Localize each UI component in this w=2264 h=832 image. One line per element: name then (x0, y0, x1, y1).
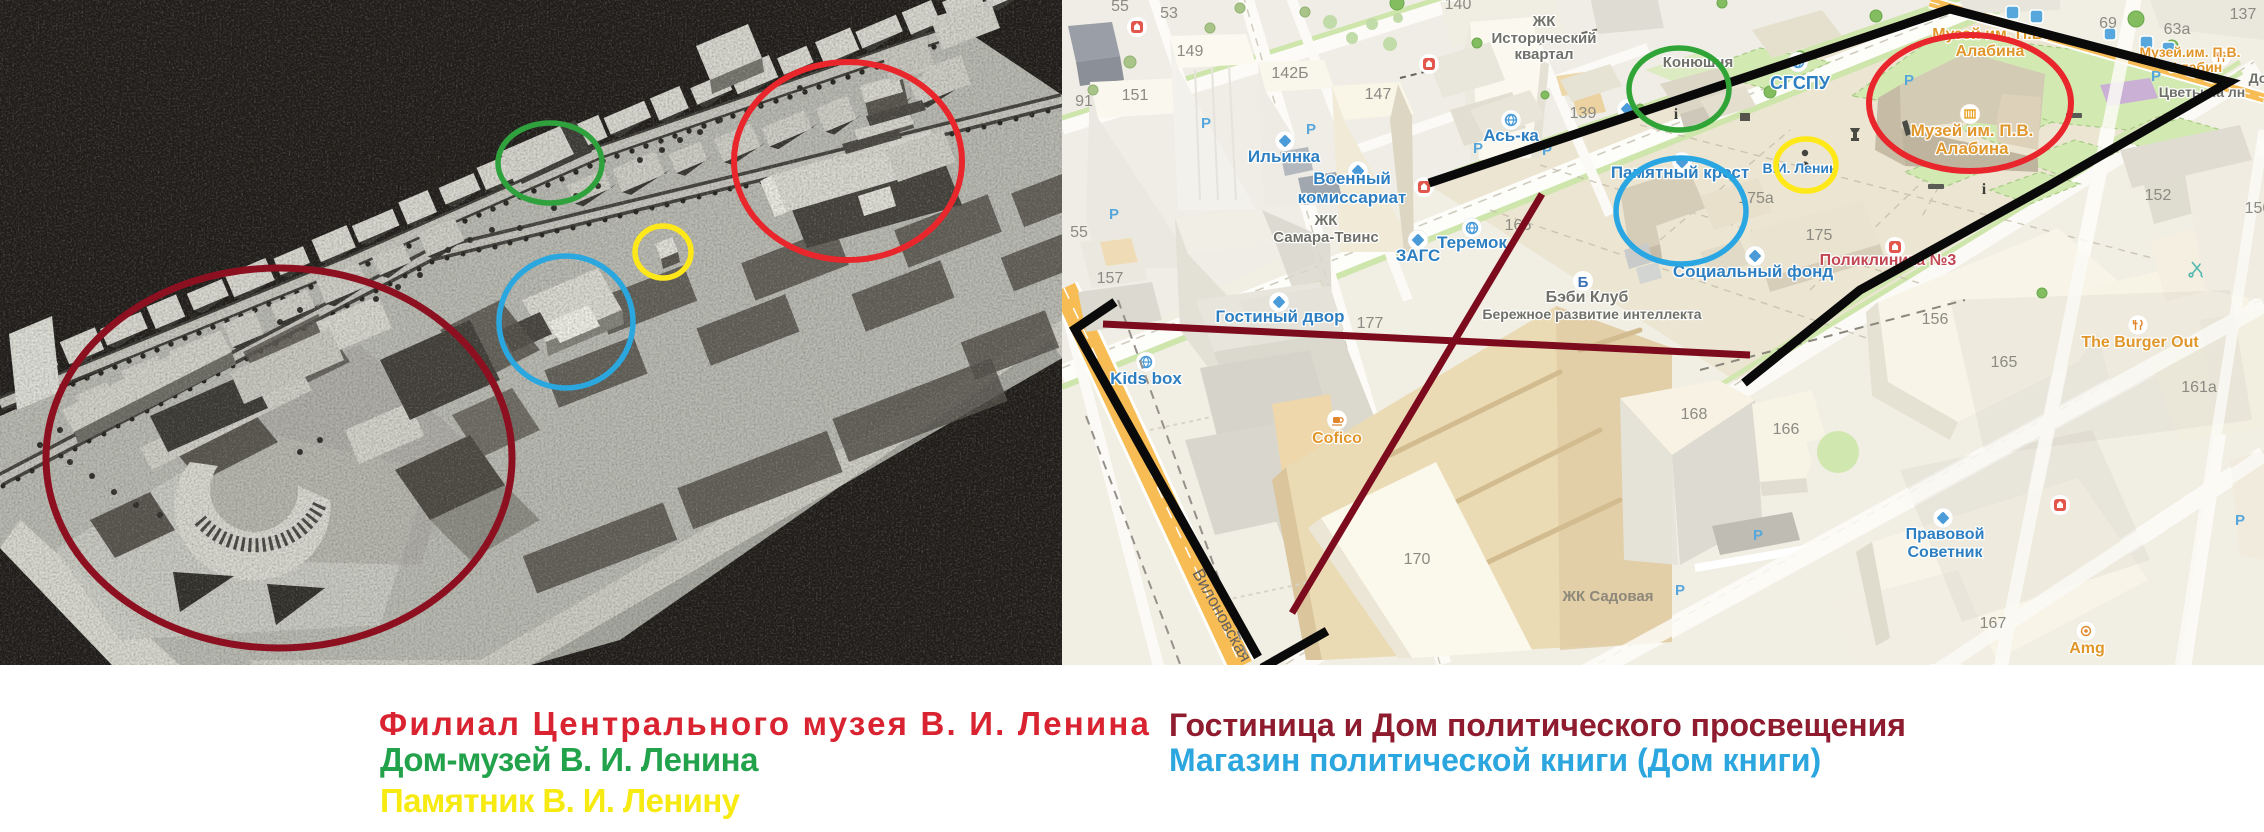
svg-text:157: 157 (1097, 270, 1124, 287)
svg-text:170: 170 (1404, 551, 1431, 568)
svg-text:P: P (1201, 115, 1211, 132)
svg-text:165: 165 (1991, 354, 2018, 371)
svg-text:142Б: 142Б (1271, 65, 1308, 82)
svg-text:Исторический: Исторический (1492, 30, 1597, 47)
svg-text:69: 69 (2099, 15, 2117, 32)
svg-text:Советник: Советник (1908, 544, 1984, 561)
svg-text:161а: 161а (2181, 379, 2217, 396)
svg-text:177: 177 (1357, 315, 1384, 332)
svg-text:P: P (1306, 121, 1316, 138)
svg-text:Военный: Военный (1313, 169, 1391, 188)
svg-text:ЖК: ЖК (1314, 212, 1339, 229)
svg-text:166: 166 (1773, 421, 1800, 438)
svg-text:P: P (2235, 512, 2245, 529)
svg-text:Теремок: Теремок (1437, 233, 1507, 252)
svg-text:Самара-Твинс: Самара-Твинс (1273, 229, 1379, 246)
svg-text:The Burger Out: The Burger Out (2081, 334, 2199, 351)
svg-text:150: 150 (2245, 200, 2264, 217)
svg-text:P: P (2151, 68, 2161, 85)
svg-text:Алабина: Алабина (1935, 139, 2009, 158)
svg-text:комиссариат: комиссариат (1298, 188, 1407, 207)
svg-text:55: 55 (1070, 224, 1088, 241)
svg-text:ЖК Садовая: ЖК Садовая (1561, 588, 1653, 605)
svg-text:P: P (1675, 582, 1685, 599)
svg-text:152: 152 (2145, 187, 2172, 204)
svg-text:До: До (2249, 70, 2264, 86)
svg-text:Amg: Amg (2069, 640, 2105, 657)
svg-text:Бэби Клуб: Бэби Клуб (1546, 289, 1629, 306)
svg-text:53: 53 (1160, 5, 1178, 22)
svg-text:63а: 63а (2164, 21, 2191, 38)
svg-text:139: 139 (1570, 105, 1597, 122)
svg-text:151: 151 (1122, 87, 1149, 104)
svg-text:P: P (1904, 72, 1914, 89)
svg-text:175: 175 (1806, 227, 1833, 244)
svg-text:147: 147 (1365, 86, 1392, 103)
svg-text:СГСПУ: СГСПУ (1770, 73, 1831, 93)
svg-text:P: P (1753, 527, 1763, 544)
svg-text:167: 167 (1980, 615, 2007, 632)
svg-text:91: 91 (1075, 93, 1093, 110)
svg-text:i: i (1982, 181, 1987, 198)
svg-text:Музей им. П.В.: Музей им. П.В. (1911, 121, 2034, 140)
svg-text:149: 149 (1177, 43, 1204, 60)
svg-text:Правовой: Правовой (1906, 526, 1985, 543)
svg-text:P: P (1109, 206, 1119, 223)
svg-text:ЗАГС: ЗАГС (1396, 246, 1441, 265)
svg-text:Ильинка: Ильинка (1248, 147, 1321, 166)
svg-text:Cofico: Cofico (1312, 430, 1362, 447)
svg-text:P: P (1473, 140, 1483, 157)
svg-text:Поликлиника №3: Поликлиника №3 (1820, 252, 1957, 269)
svg-text:140: 140 (1445, 0, 1472, 13)
svg-text:Музей.им. П.В.: Музей.им. П.В. (2139, 44, 2240, 60)
svg-text:Бережное развитие интеллекта: Бережное развитие интеллекта (1482, 306, 1701, 322)
svg-text:Гостиный двор: Гостиный двор (1216, 307, 1345, 326)
svg-text:156: 156 (1922, 311, 1949, 328)
svg-text:квартал: квартал (1514, 46, 1573, 63)
svg-text:ЖК: ЖК (1532, 13, 1557, 30)
svg-text:i: i (1674, 106, 1679, 123)
svg-text:137: 137 (2230, 6, 2257, 23)
svg-text:55: 55 (1111, 0, 1129, 15)
svg-text:168: 168 (1681, 406, 1708, 423)
svg-text:Ась-ка: Ась-ка (1483, 126, 1539, 145)
svg-text:Алабина: Алабина (1956, 43, 2025, 60)
